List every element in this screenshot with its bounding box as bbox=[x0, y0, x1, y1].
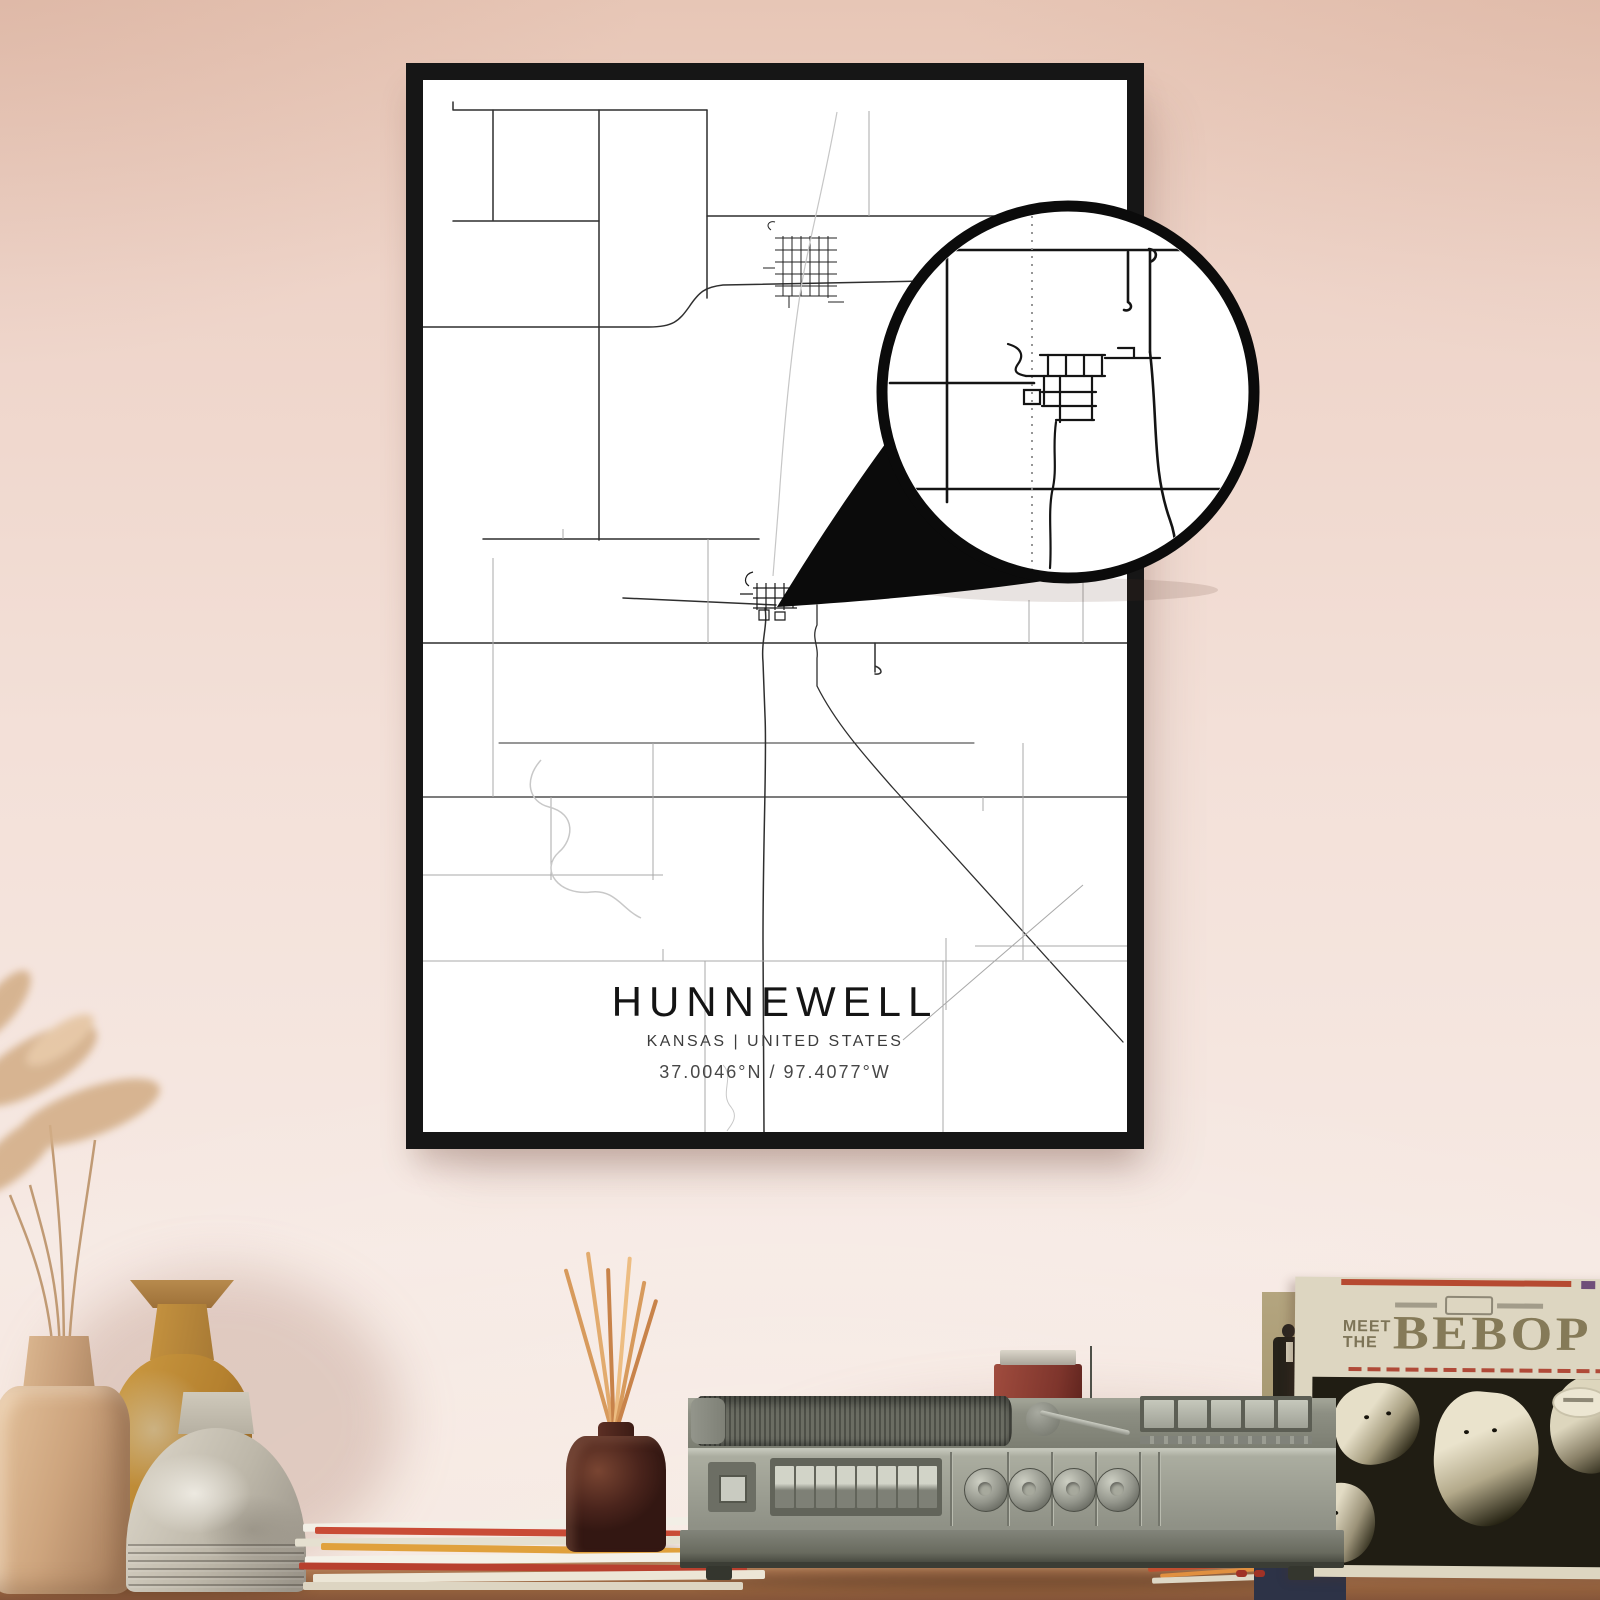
preset-button-row bbox=[770, 1458, 942, 1516]
preset-button bbox=[837, 1466, 856, 1508]
preset-button bbox=[878, 1466, 897, 1508]
album-title-meet: MEET bbox=[1343, 1319, 1392, 1335]
preset-button bbox=[775, 1466, 794, 1508]
lighter-chrome-top bbox=[1000, 1350, 1076, 1365]
control-key bbox=[1178, 1400, 1208, 1428]
artwork-face bbox=[1326, 1377, 1428, 1472]
album-subtitle-microtext bbox=[1348, 1367, 1600, 1373]
player-front-panel bbox=[688, 1448, 1336, 1530]
control-key bbox=[1144, 1400, 1174, 1428]
artwork-face bbox=[1428, 1388, 1544, 1531]
record-player bbox=[688, 1346, 1336, 1590]
album-corner-mark bbox=[1581, 1281, 1595, 1289]
album-title-prefix: MEET THE bbox=[1343, 1319, 1392, 1351]
vent-grille bbox=[1140, 1436, 1312, 1444]
artwork-eye bbox=[1464, 1430, 1469, 1434]
panel-divider bbox=[950, 1452, 952, 1526]
preset-button bbox=[796, 1466, 815, 1508]
panel-divider bbox=[1158, 1452, 1160, 1526]
printed-figure bbox=[1282, 1324, 1295, 1338]
gray-vase-ribs bbox=[128, 1544, 304, 1592]
gray-bell-vase bbox=[126, 1392, 306, 1592]
player-plinth bbox=[680, 1530, 1344, 1568]
red-reflection bbox=[1236, 1570, 1247, 1577]
tonearm-base bbox=[1026, 1402, 1060, 1436]
reed-diffuser bbox=[556, 1256, 676, 1556]
red-reflection bbox=[1254, 1570, 1265, 1577]
reed-stick bbox=[612, 1281, 646, 1439]
preset-button bbox=[816, 1466, 835, 1508]
room-scene: HUNNEWELL KANSAS | UNITED STATES 37.0046… bbox=[0, 0, 1600, 1600]
preset-button bbox=[898, 1466, 917, 1508]
diffuser-bottle bbox=[566, 1436, 666, 1552]
control-knob bbox=[964, 1468, 1008, 1512]
album-title-the: THE bbox=[1343, 1335, 1392, 1351]
turntable-platter bbox=[694, 1396, 1012, 1446]
gray-vase-body bbox=[126, 1428, 306, 1592]
amber-vase-neck bbox=[150, 1304, 214, 1360]
control-key bbox=[1211, 1400, 1241, 1428]
zoom-callout bbox=[760, 180, 1270, 620]
control-knob bbox=[1052, 1468, 1096, 1512]
player-foot bbox=[706, 1566, 732, 1580]
album-top-stripe bbox=[1341, 1279, 1571, 1287]
magazine bbox=[303, 1582, 743, 1590]
control-knob bbox=[1096, 1468, 1140, 1512]
amber-vase-rim bbox=[130, 1280, 234, 1308]
artwork-eye bbox=[1492, 1428, 1497, 1432]
preset-button bbox=[857, 1466, 876, 1508]
control-key bbox=[1278, 1400, 1308, 1428]
grass-plumes bbox=[0, 962, 168, 1207]
control-key bbox=[1245, 1400, 1275, 1428]
control-knob bbox=[1008, 1468, 1052, 1512]
album-title-main: BEBOP bbox=[1393, 1305, 1592, 1362]
preset-button bbox=[919, 1466, 938, 1508]
power-button bbox=[708, 1462, 756, 1512]
antenna bbox=[1090, 1346, 1092, 1400]
tan-jug bbox=[0, 1336, 130, 1594]
river bbox=[530, 760, 734, 1131]
artwork-eye bbox=[1386, 1411, 1391, 1415]
artwork-eye bbox=[1364, 1415, 1369, 1419]
tan-jug-body bbox=[0, 1386, 130, 1594]
player-foot bbox=[1288, 1566, 1314, 1580]
piano-key-controls bbox=[1140, 1396, 1312, 1432]
album-artwork bbox=[1311, 1377, 1600, 1568]
